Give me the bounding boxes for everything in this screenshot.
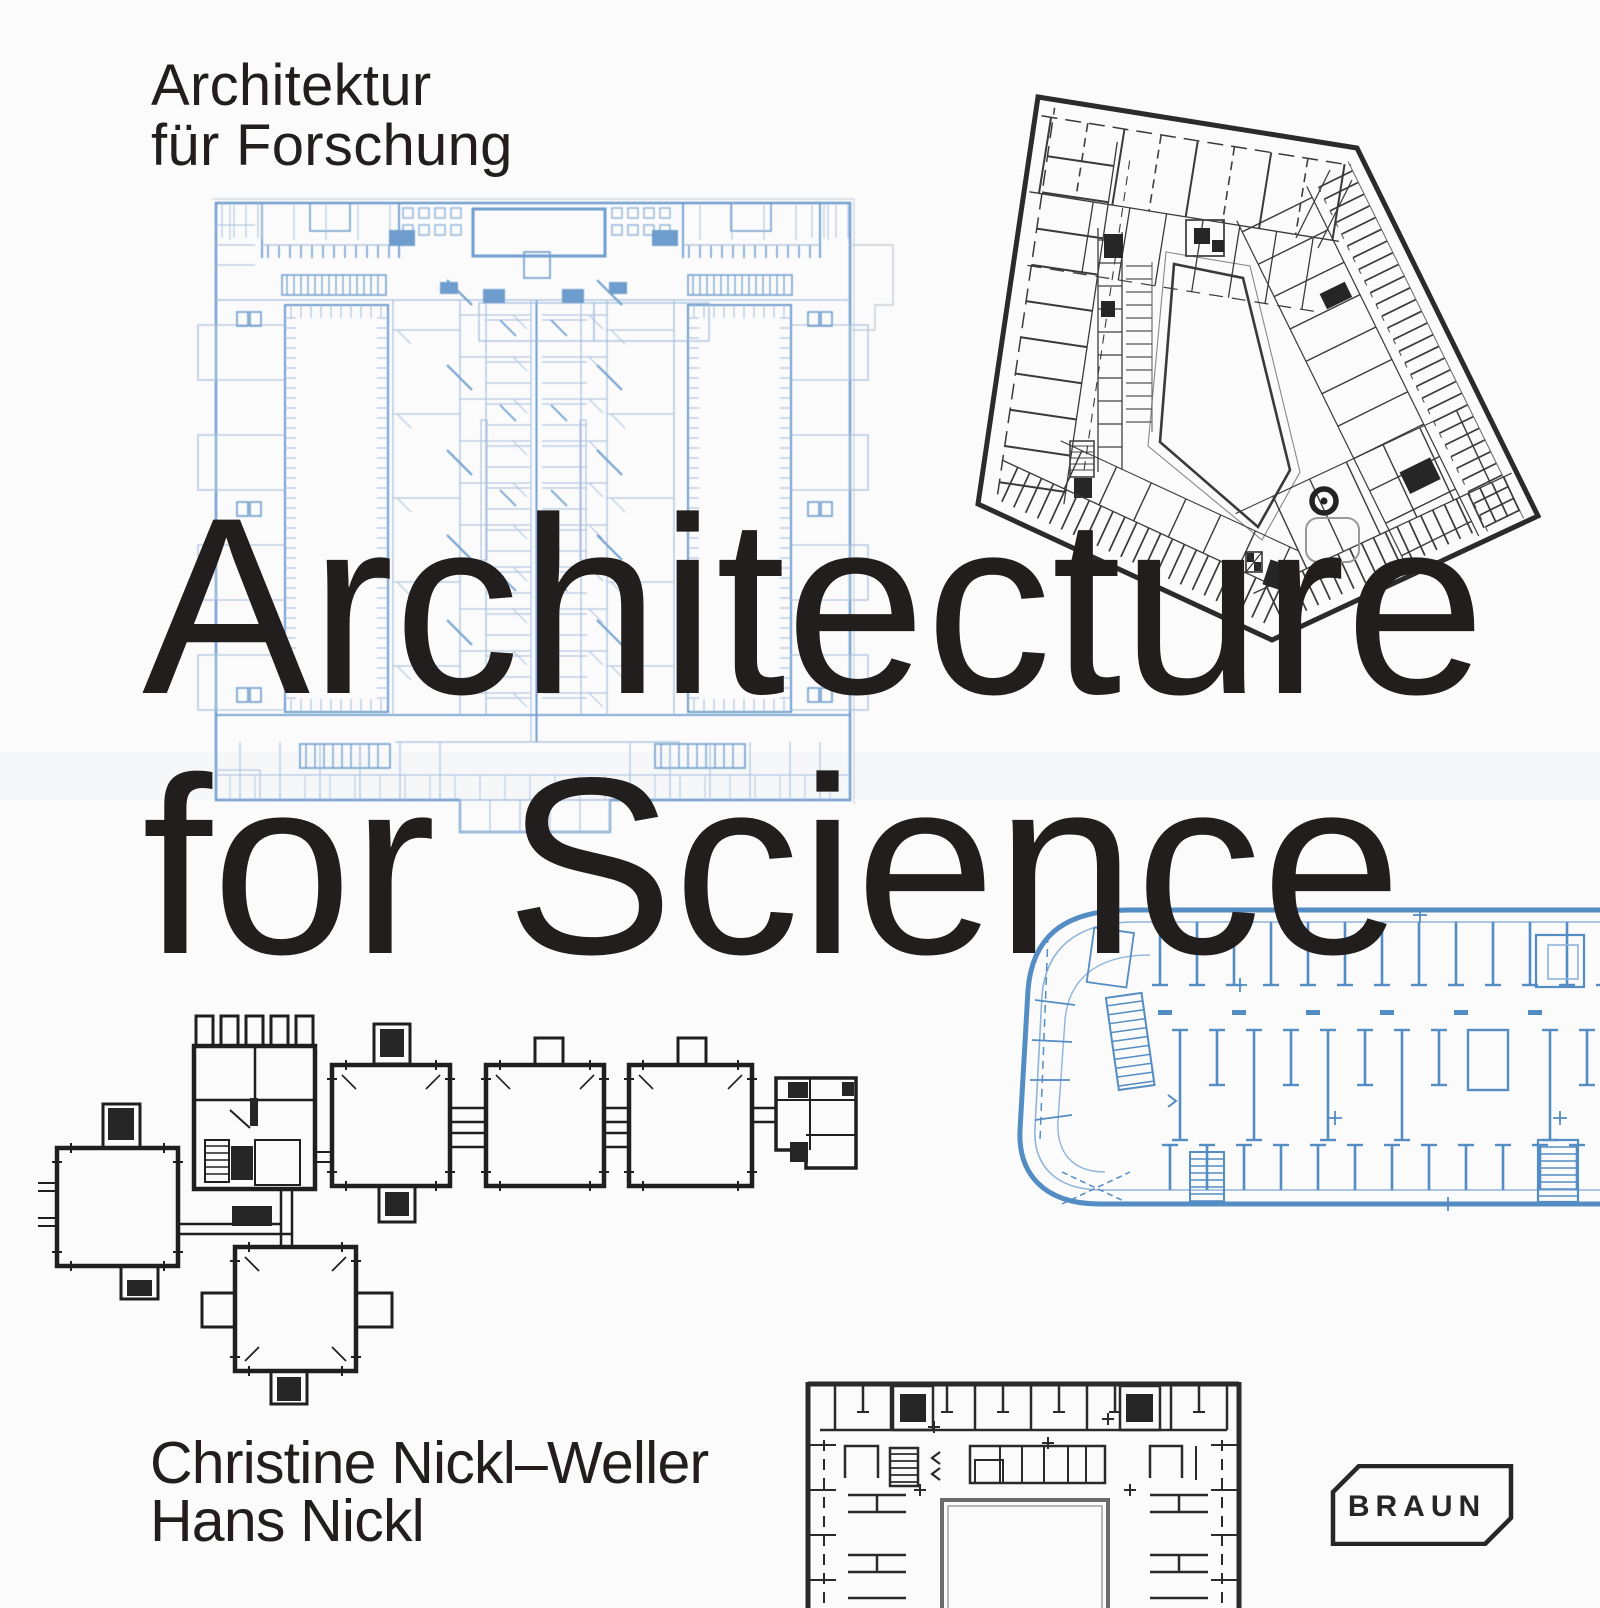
svg-text:BRAUN: BRAUN xyxy=(1348,1490,1486,1523)
